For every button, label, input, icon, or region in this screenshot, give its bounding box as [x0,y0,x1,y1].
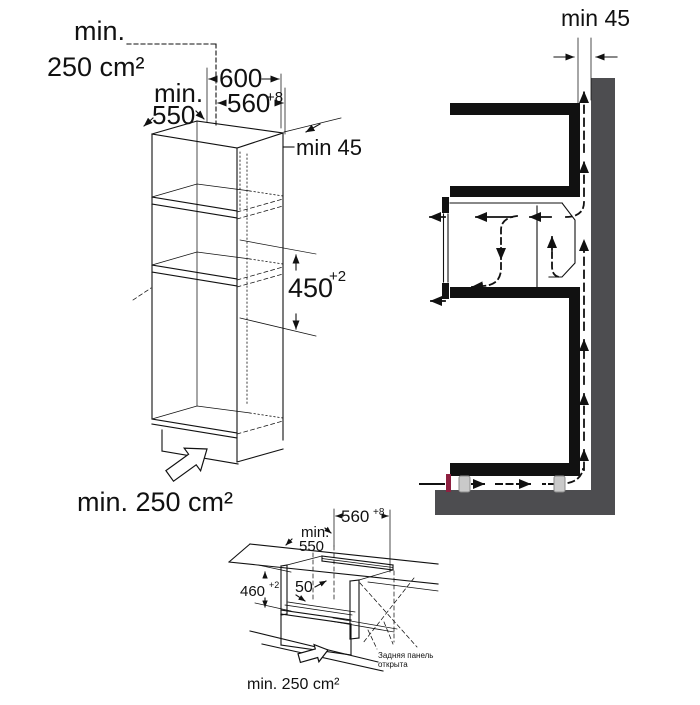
side-rear-gap-label: min 45 [561,5,630,31]
base-niche-height-dimension: 460 +2 [240,565,291,611]
cabinet-section [442,103,580,476]
back-panel-note-line1: Задняя панель [378,651,433,660]
niche-height-label: 450 [288,273,333,303]
airflow-niche-circulation [472,202,584,287]
cabinet-foot-rear [554,476,565,492]
top-vent-area-label: min. 250 cm² [47,16,145,82]
base-depth-value: 550 [299,538,324,555]
niche-bottom-platform [281,602,397,632]
tall-cabinet-outline [152,121,283,462]
cabinet-foot-front [459,476,470,492]
base-niche-width-tolerance: +8 [373,507,385,518]
wall [591,78,615,515]
niche-width-dimension: 560 +8 [218,88,285,134]
floor [435,490,615,515]
tall-cabinet-hidden-lines [133,199,283,434]
side-section-diagram: min 45 [420,5,630,515]
niche-width-label: 560 [227,88,270,118]
depth-label-value: 550 [152,100,195,130]
front-slot-dimension: 50 [295,579,326,601]
tall-cabinet-diagram: 600 560 +8 min. 550 min. 250 cm² min 4 [47,16,362,517]
niche-height-tolerance: +2 [329,268,346,285]
base-niche-width-dimension: 560 +8 [334,507,390,572]
base-depth-dimension: min. 550 [286,524,331,555]
base-niche-height-tolerance: +2 [269,580,279,590]
front-slot-label: 50 [295,579,313,596]
installation-diagram-page: 600 560 +8 min. 550 min. 250 cm² min 4 [0,0,700,700]
tall-cabinet-shelves [152,121,283,419]
rear-gap-label: min 45 [296,135,362,160]
installation-diagram: 600 560 +8 min. 550 min. 250 cm² min 4 [0,0,700,700]
base-vent-arrow [298,645,328,663]
back-panel-note-line2: открыта [378,660,408,669]
base-bottom-vent-label: min. 250 cm² [247,676,340,693]
top-vent-value: 250 cm² [47,52,145,82]
depth-dimension: min. 550 [144,78,204,130]
niche-width-tolerance: +8 [266,89,283,106]
base-cabinet-diagram: 560 +8 min. 550 460 +2 50 Задняя пане [229,507,438,693]
leveling-marker [446,474,451,492]
back-panel-note: Задняя панель открыта [378,651,433,669]
base-niche-width-label: 560 [341,507,369,526]
bottom-vent-label: min. 250 cm² [77,487,233,517]
top-vent-min: min. [74,16,125,46]
niche-height-dimension: 450 +2 [240,240,346,336]
rear-gap-dimension: min 45 [283,118,362,160]
base-niche-height-label: 460 [240,583,265,600]
